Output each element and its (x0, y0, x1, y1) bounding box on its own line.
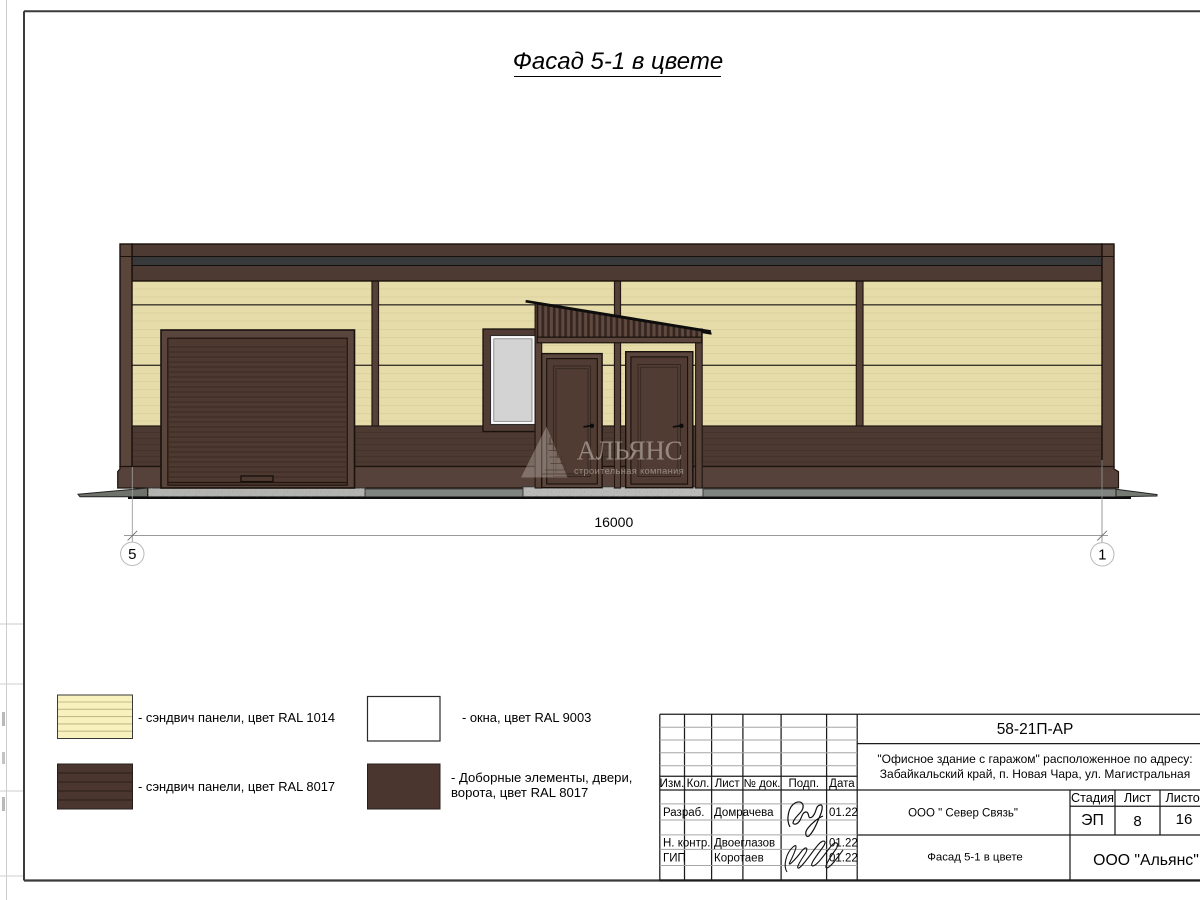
svg-text:01.22: 01.22 (829, 807, 858, 819)
svg-text:Разраб.: Разраб. (663, 807, 704, 819)
svg-text:Кол.: Кол. (687, 778, 710, 790)
svg-text:Лист: Лист (715, 778, 741, 790)
svg-text:Дата: Дата (829, 778, 855, 790)
svg-text:№ док.: № док. (744, 778, 781, 790)
svg-text:58-21П-АР: 58-21П-АР (997, 721, 1074, 738)
svg-text:"Офисное здание с гаражом" рас: "Офисное здание с гаражом" расположенное… (877, 752, 1192, 766)
svg-text:8: 8 (1133, 813, 1141, 830)
svg-text:Стадия: Стадия (1071, 791, 1114, 805)
svg-text:16: 16 (1176, 811, 1193, 828)
svg-text:Н. контр.: Н. контр. (663, 838, 710, 850)
svg-text:Домрачева: Домрачева (714, 807, 774, 819)
svg-text:Лист: Лист (1124, 791, 1152, 805)
svg-text:Листов: Листов (1166, 791, 1200, 805)
svg-text:ООО " Север Связь": ООО " Север Связь" (908, 808, 1018, 820)
svg-text:ООО "Альянс": ООО "Альянс" (1093, 852, 1199, 869)
svg-text:Коротаев: Коротаев (714, 853, 764, 865)
svg-text:Двоеглазов: Двоеглазов (714, 838, 775, 850)
svg-text:Забайкальский край, п. Новая Ч: Забайкальский край, п. Новая Чара, ул. М… (880, 767, 1190, 781)
svg-text:ЭП: ЭП (1081, 812, 1104, 829)
svg-text:Изм.: Изм. (660, 778, 685, 790)
svg-text:Фасад 5-1 в цвете: Фасад 5-1 в цвете (927, 852, 1023, 864)
svg-text:ГИП: ГИП (663, 853, 686, 865)
svg-text:Подп.: Подп. (789, 778, 820, 790)
